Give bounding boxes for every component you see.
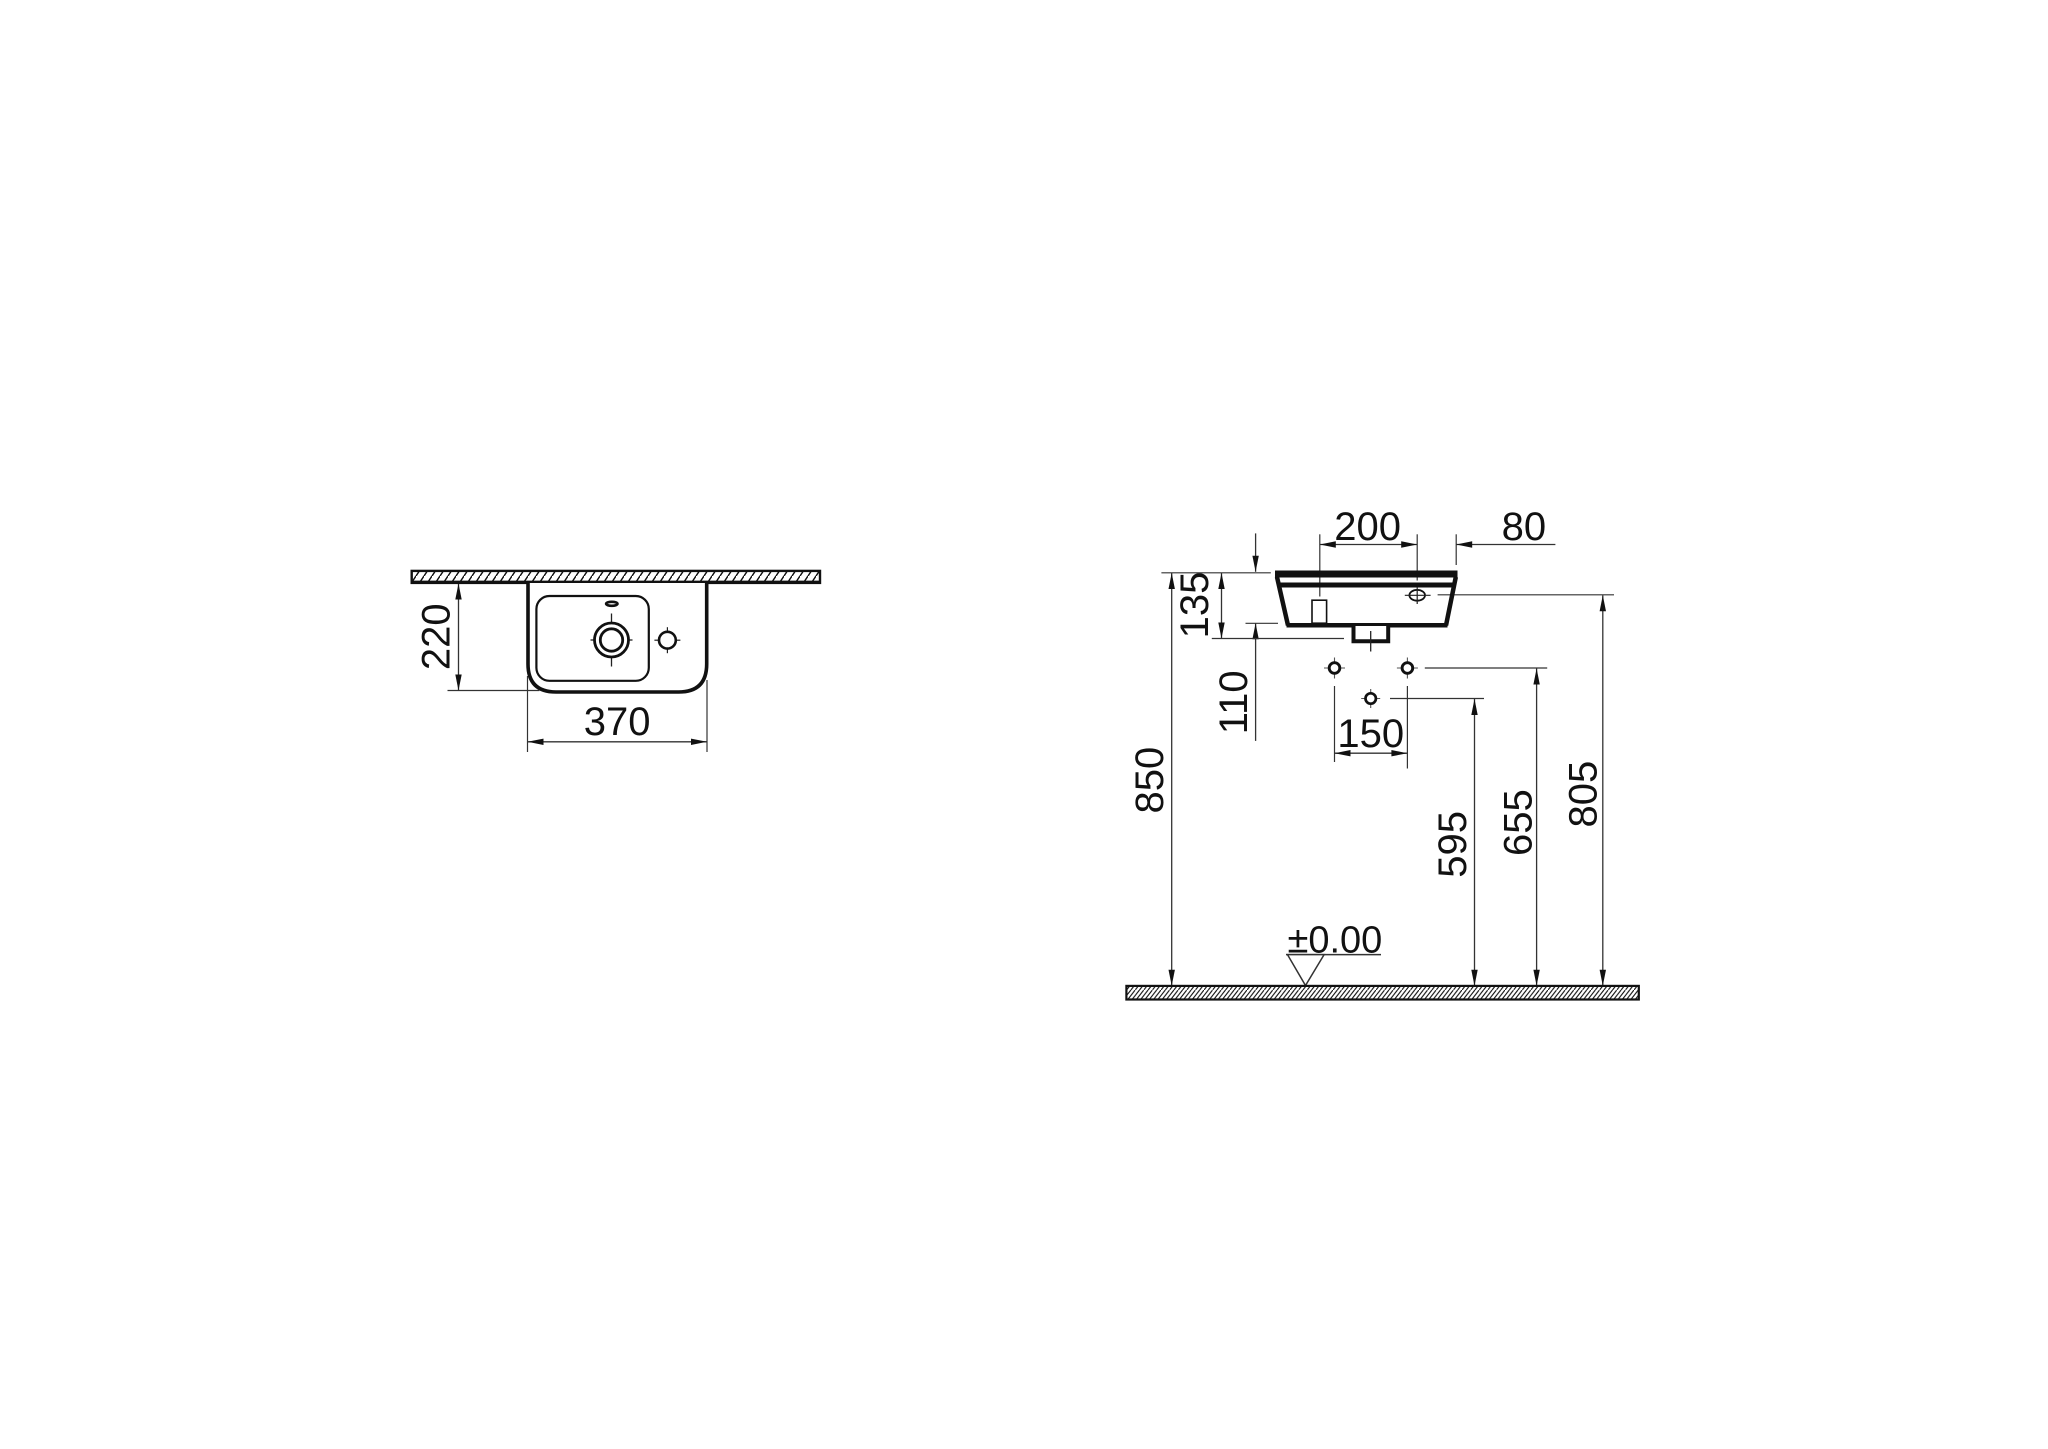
svg-text:220: 220 [414,603,458,670]
svg-text:655: 655 [1497,789,1541,856]
svg-text:850: 850 [1128,747,1172,814]
svg-text:595: 595 [1431,811,1475,878]
svg-text:370: 370 [584,700,651,744]
svg-text:200: 200 [1334,505,1401,549]
svg-text:805: 805 [1561,761,1605,828]
svg-text:80: 80 [1502,505,1547,549]
svg-text:110: 110 [1212,670,1256,734]
svg-text:150: 150 [1337,712,1404,756]
svg-text:135: 135 [1173,572,1217,639]
